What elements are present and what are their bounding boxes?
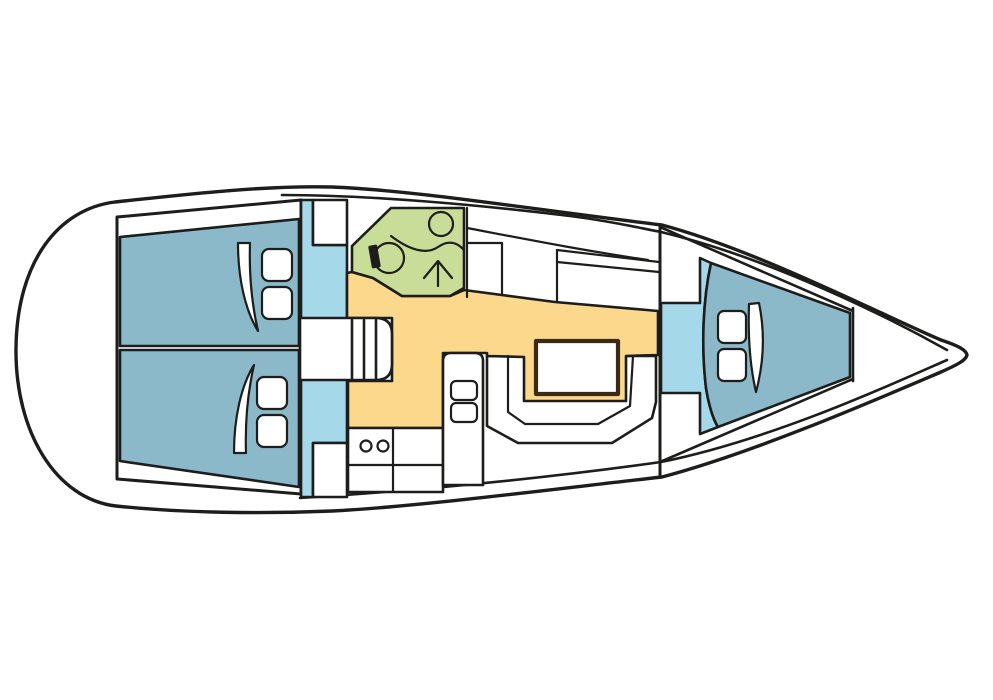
aft-cabin-port-berth (120, 219, 299, 346)
sink-basin-icon (378, 441, 389, 452)
pillow (262, 249, 292, 281)
pillow (257, 377, 287, 409)
pillow (451, 403, 477, 422)
pillow (718, 311, 746, 343)
saloon-table (536, 341, 618, 394)
pillow (257, 415, 287, 447)
galley-counter (348, 428, 443, 492)
yacht-floor-plan (0, 0, 993, 700)
yacht-interior-layout-diagram (0, 0, 993, 700)
pillow (262, 287, 292, 319)
companionway-steps (300, 318, 392, 380)
pillow (718, 349, 746, 381)
sink-basin-icon (361, 441, 372, 452)
locker (313, 443, 347, 497)
locker (313, 200, 347, 245)
pillow (451, 381, 477, 400)
